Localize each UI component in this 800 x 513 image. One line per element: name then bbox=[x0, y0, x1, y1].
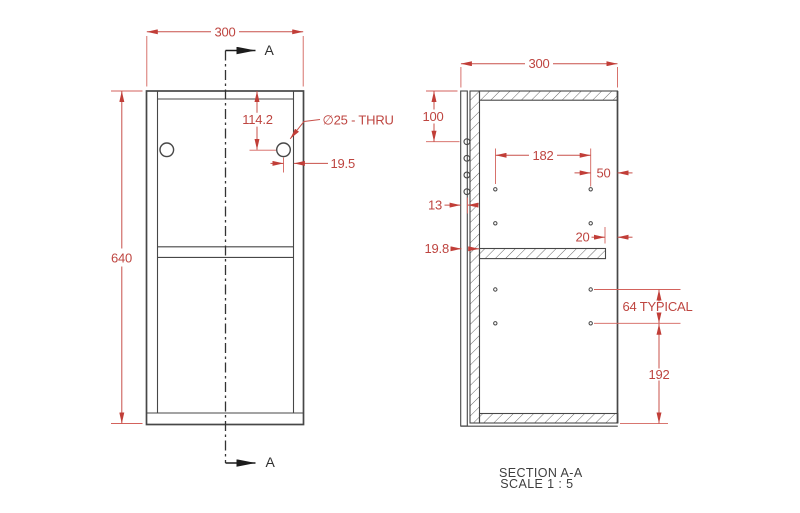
front-dim-height: 640 bbox=[111, 91, 143, 424]
pin-hole bbox=[494, 288, 497, 291]
section-shelf-hatched bbox=[480, 249, 606, 259]
pin-hole bbox=[589, 322, 592, 325]
front-width-value: 300 bbox=[214, 24, 235, 39]
section-pin-span-value: 182 bbox=[532, 148, 553, 163]
section-view: 300 100 182 50 13 bbox=[422, 56, 692, 491]
front-left-hole bbox=[160, 143, 174, 157]
section-dim-bottom: 192 bbox=[620, 324, 670, 424]
front-dim-hole-offset: 114.2 bbox=[242, 91, 276, 150]
section-dim-shelf-gap: 20 bbox=[575, 227, 632, 245]
section-label-bottom: A bbox=[266, 454, 276, 470]
section-dim-top: 100 bbox=[422, 91, 459, 142]
front-hole-callout: ∅25 - THRU bbox=[290, 112, 394, 139]
section-bottom-panel-hatched bbox=[480, 414, 618, 424]
section-label-top: A bbox=[265, 42, 275, 58]
front-view: A A 300 640 114.2 ∅25 - THRU bbox=[111, 24, 394, 470]
pin-hole bbox=[494, 188, 497, 191]
pin-hole bbox=[589, 222, 592, 225]
section-scale: SCALE 1 : 5 bbox=[500, 477, 573, 491]
front-hole-offset-value: 114.2 bbox=[242, 112, 273, 127]
section-shelf-thickness-value: 19.8 bbox=[424, 241, 449, 256]
section-pin-pitch-value: 64 TYPICAL bbox=[622, 299, 692, 314]
pin-hole bbox=[494, 222, 497, 225]
section-top-panel-hatched bbox=[480, 91, 618, 100]
section-dim-pin-span: 182 bbox=[496, 148, 591, 187]
front-hole-callout-text: ∅25 - THRU bbox=[323, 112, 394, 127]
section-dim-pin-pitch: 64 TYPICAL bbox=[594, 290, 693, 324]
front-height-value: 640 bbox=[111, 250, 132, 265]
section-bottom-value: 192 bbox=[648, 367, 669, 382]
front-dim-hole-edge: 19.5 bbox=[271, 156, 356, 173]
pin-hole bbox=[589, 188, 592, 191]
section-dim-width: 300 bbox=[461, 56, 618, 87]
engineering-drawing: A A 300 640 114.2 ∅25 - THRU bbox=[0, 0, 800, 513]
section-side-wall-hatched bbox=[470, 91, 480, 423]
section-shelf-gap-value: 20 bbox=[575, 230, 589, 245]
section-top-value: 100 bbox=[422, 109, 443, 124]
section-dim-pin-right: 50 bbox=[575, 165, 633, 180]
section-back-panel-value: 13 bbox=[428, 198, 442, 213]
front-hole-edge-value: 19.5 bbox=[331, 156, 356, 171]
front-right-hole bbox=[277, 143, 291, 157]
pin-hole bbox=[589, 288, 592, 291]
pin-hole bbox=[494, 322, 497, 325]
section-pin-right-value: 50 bbox=[596, 165, 610, 180]
section-width-value: 300 bbox=[528, 56, 549, 71]
